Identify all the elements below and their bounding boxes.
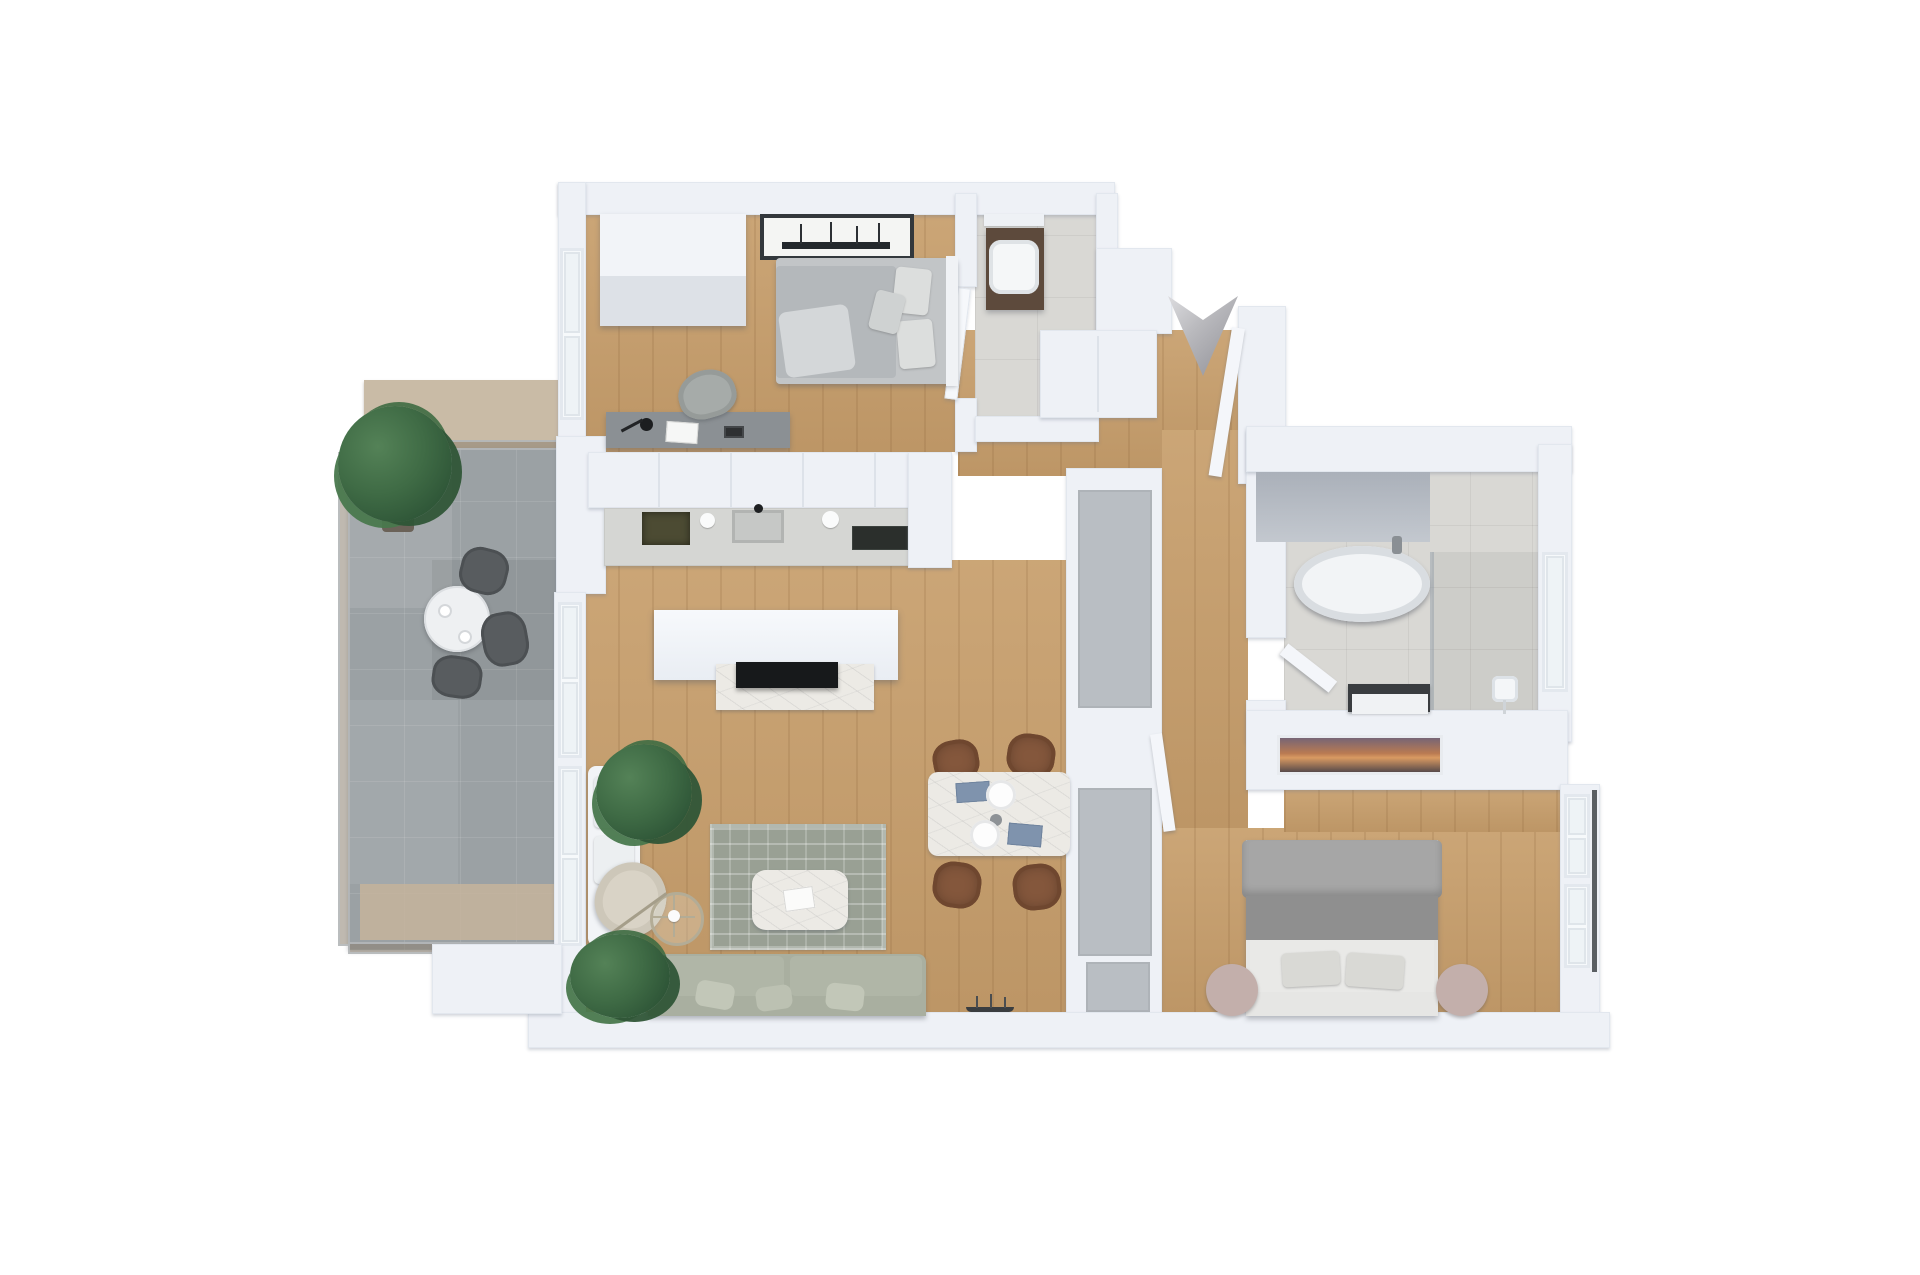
window-pane [562, 606, 578, 679]
cup [458, 630, 472, 644]
nightstand-right [1436, 964, 1488, 1016]
bed2 [1246, 840, 1438, 1016]
ship-mast [1004, 997, 1006, 1008]
window-pane [564, 252, 580, 333]
marina-art-mast [856, 226, 858, 244]
wall-southwest-stub [432, 944, 562, 1014]
kitchen-sink [732, 510, 784, 543]
shower-floor [1432, 552, 1538, 710]
bedroom2-window-glass-edge [1592, 790, 1597, 972]
flat-tv [736, 662, 838, 688]
balcony-tile-patch [348, 700, 458, 884]
sofa-pillow [755, 984, 794, 1013]
model-ship-decor [962, 996, 1020, 1012]
bed1-headboard [946, 256, 958, 386]
closet-end-door [1086, 962, 1150, 1012]
wall-bedroom1-east-lower [955, 398, 977, 452]
window-pane [1568, 838, 1586, 875]
wall-bathroom-north [1246, 426, 1572, 472]
window-pane [1568, 798, 1586, 835]
ship-mast [976, 996, 978, 1008]
dining-table [928, 772, 1070, 856]
pillow [896, 319, 936, 370]
kitchen-round-fixture [700, 513, 715, 528]
kitchen-faucet [754, 504, 763, 513]
sofa-pillow [694, 979, 736, 1011]
window-pane [1568, 888, 1586, 925]
bed2-sheet [1250, 940, 1434, 992]
glass-cooktop [852, 526, 908, 550]
glass-railing-left [338, 452, 350, 946]
plate [970, 820, 1000, 850]
kitchen-hob-inset [642, 512, 690, 545]
marina-art-mast [800, 224, 802, 244]
closet-sliding-door [1078, 788, 1152, 956]
kitchen-upper-cabinets [588, 452, 950, 508]
bedroom2-east-window-upper [1564, 794, 1590, 878]
bed2-blanket [1246, 896, 1438, 940]
bistro-table [424, 586, 490, 652]
hall-closet [1040, 330, 1157, 418]
book-on-table [783, 886, 816, 912]
bathroom-vanity-cabinet [1352, 694, 1428, 714]
potted-plant-north [596, 744, 692, 840]
bathtub [1294, 546, 1430, 622]
bedroom1-west-window [560, 248, 584, 420]
plate [986, 780, 1016, 810]
window-pane [564, 336, 580, 417]
marina-art-mast [830, 222, 832, 244]
kitchen-tall-unit [908, 452, 952, 568]
balcony-sun-strip [360, 884, 558, 940]
ship-mast [990, 994, 992, 1008]
shower-arm [1503, 700, 1506, 714]
vanity-cabinet [986, 228, 1044, 310]
blue-napkin [1007, 823, 1043, 848]
bed1 [776, 258, 958, 384]
window-pane [562, 858, 578, 943]
balcony [336, 376, 572, 962]
arc-lamp-hub [668, 910, 680, 922]
hall-closet-seam [1097, 336, 1099, 412]
glass-partition [1430, 552, 1434, 710]
living-west-window-north [558, 602, 582, 758]
wardrobe [600, 214, 746, 326]
tub-faucet [1392, 536, 1402, 554]
wardrobe-front [600, 276, 746, 326]
floorplan-canvas [0, 0, 1920, 1275]
window-pane [562, 682, 578, 755]
pillow [1281, 951, 1341, 988]
marina-art-mast [878, 223, 880, 244]
bed2-folded-blanket [1242, 840, 1442, 898]
sofa-pillow [825, 982, 866, 1012]
nightstand-left [1206, 964, 1258, 1016]
living-west-window-south [558, 766, 582, 946]
bed1-throw [778, 303, 857, 378]
bathroom-east-window [1542, 552, 1568, 692]
alarm-clock [724, 426, 744, 438]
kitchen-round-fixture [822, 511, 839, 528]
closet-column [1066, 468, 1162, 1016]
wall-entry-north [1096, 248, 1172, 334]
bedroom2-east-window-lower [1564, 884, 1590, 968]
window-pane [1568, 928, 1586, 965]
cup [438, 604, 452, 618]
tub-alcove-wall [1256, 472, 1430, 542]
wall-north [558, 182, 1115, 215]
hallway-floor [1160, 430, 1248, 832]
window-pane [562, 770, 578, 855]
washbasin [989, 240, 1039, 294]
shower-room-shelf [984, 214, 1044, 226]
wall-bedroom1-east-upper [955, 193, 977, 287]
rain-shower-head [1492, 676, 1518, 702]
potted-tree [338, 406, 452, 522]
wall-south [528, 1012, 1610, 1048]
wall-shower-room-south [975, 416, 1099, 442]
marina-wall-art [760, 214, 914, 260]
sofa [648, 954, 926, 1016]
kitchen-countertop [604, 508, 950, 566]
closet-sliding-door [1078, 490, 1152, 708]
window-pane [1546, 556, 1564, 688]
sunset-wall-tv [1280, 738, 1440, 772]
pillow [1345, 952, 1405, 990]
bedroom2-floor-upper [1284, 788, 1562, 832]
open-book [665, 421, 698, 444]
coffee-table [752, 870, 848, 930]
bathroom-vanity [1348, 684, 1430, 712]
potted-plant-south [570, 934, 670, 1018]
marina-art-boats [782, 242, 890, 249]
